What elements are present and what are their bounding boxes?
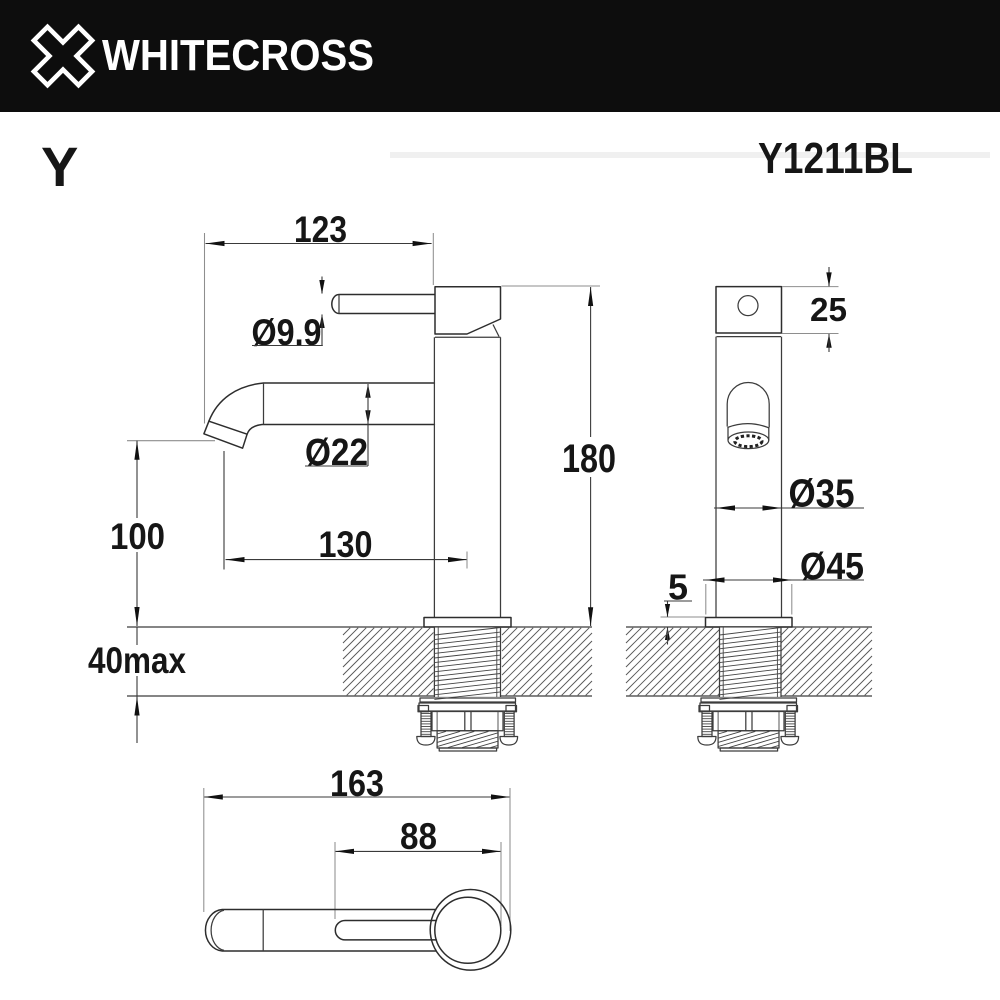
svg-text:Ø45: Ø45 [800,546,864,588]
svg-text:163: 163 [330,763,384,804]
svg-text:130: 130 [319,524,373,565]
svg-text:Ø9.9: Ø9.9 [252,312,322,353]
svg-text:180: 180 [562,437,616,481]
svg-text:Ø22: Ø22 [305,432,368,474]
svg-text:Ø35: Ø35 [789,472,855,516]
svg-text:100: 100 [110,516,165,557]
svg-text:25: 25 [810,291,847,328]
svg-text:88: 88 [400,816,437,857]
svg-text:40max: 40max [88,640,186,681]
svg-text:WHITECROSS: WHITECROSS [102,31,374,80]
svg-text:Y1211BL: Y1211BL [758,134,913,183]
svg-text:Y: Y [41,135,78,198]
